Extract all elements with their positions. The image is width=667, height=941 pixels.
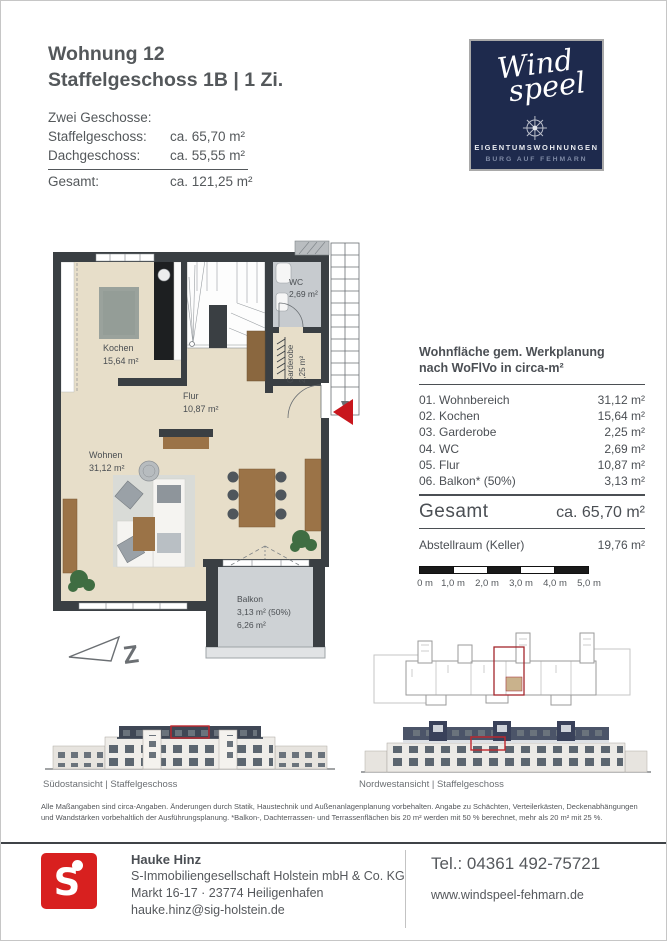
- table-row: 05. Flur10,87 m²: [419, 457, 645, 473]
- table-divider: [419, 528, 645, 529]
- spec-row: Staffelgeschoss: ca. 65,70 m²: [48, 127, 263, 146]
- elevation-northwest-drawing: [359, 717, 653, 777]
- svg-text:Z: Z: [121, 640, 140, 670]
- scale-segment: [521, 567, 555, 573]
- storage-room-row: Abstellraum (Keller)19,76 m²: [419, 538, 645, 552]
- contact-address: Markt 16-17 · 23774 Heiligenhafen: [131, 885, 405, 902]
- windspeel-logo: Windspeel EIGENTUMSWOHNUNGEN BURG AUF FE…: [469, 39, 604, 171]
- room-area-wc: 2,69 m²: [289, 289, 318, 299]
- room-area-balkon-1: 3,13 m² (50%): [237, 607, 291, 617]
- room-area-flur: 10,87 m²: [183, 404, 219, 414]
- room-label-garderobe: Garderobe: [286, 344, 295, 383]
- room-label-flur: Flur: [183, 391, 199, 401]
- room-label-kochen: Kochen: [103, 343, 134, 353]
- room-area-balkon-2: 6,26 m²: [237, 620, 266, 630]
- contact-block: Hauke Hinz S-Immobiliengesellschaft Hols…: [131, 851, 405, 919]
- contact-company: S-Immobiliengesellschaft Holstein mbH & …: [131, 868, 405, 885]
- disclaimer-text: Alle Maßangaben sind circa-Angaben. Ände…: [41, 802, 641, 823]
- contact-name: Hauke Hinz: [131, 851, 405, 868]
- spec-total-row: Gesamt: ca. 121,25 m²: [48, 172, 263, 191]
- scale-segment: [488, 567, 522, 573]
- elevation-northwest-caption: Nordwestansicht | Staffelgeschoss: [359, 779, 504, 790]
- area-table: Wohnfläche gem. Werkplanung nach WoFlVo …: [419, 344, 645, 552]
- brand-name: Windspeel: [469, 41, 604, 111]
- elevation-southeast-caption: Südostansicht | Staffelgeschoss: [43, 779, 177, 790]
- table-divider: [419, 494, 645, 496]
- scale-label: 4,0 m: [543, 578, 567, 589]
- sparkasse-s: S: [41, 861, 93, 904]
- area-summary: Zwei Geschosse: Staffelgeschoss: ca. 65,…: [48, 108, 263, 191]
- north-arrow-icon: Z: [69, 637, 140, 670]
- expose-page: Wohnung 12 Staffelgeschoss 1B | 1 Zi. Zw…: [0, 0, 667, 941]
- total-value: ca. 65,70 m²: [556, 504, 645, 522]
- table-row: 02. Kochen15,64 m²: [419, 408, 645, 424]
- spec-value: ca. 65,70 m²: [170, 127, 245, 146]
- logo-subtitle: EIGENTUMSWOHNUNGEN: [471, 143, 602, 152]
- elevation-southeast-drawing: [43, 717, 337, 777]
- page-title: Wohnung 12 Staffelgeschoss 1B | 1 Zi.: [48, 41, 283, 93]
- scale-label: 0 m: [417, 578, 433, 589]
- scale-bar: 0 m 1,0 m 2,0 m 3,0 m 4,0 m 5,0 m: [419, 566, 599, 592]
- compass-icon: [521, 115, 547, 141]
- spec-label: Staffelgeschoss:: [48, 127, 170, 146]
- scale-segment: [420, 567, 454, 573]
- spec-row: Dachgeschoss: ca. 55,55 m²: [48, 146, 263, 165]
- apartment-title: Wohnung 12: [48, 41, 283, 67]
- scale-label: 5,0 m: [577, 578, 601, 589]
- table-row: 01. Wohnbereich31,12 m²: [419, 392, 645, 408]
- footer-vertical-divider: [405, 850, 406, 928]
- scale-segment: [555, 567, 588, 573]
- spec-total-value: ca. 121,25 m²: [170, 172, 253, 191]
- sparkasse-logo-icon: S: [41, 853, 97, 909]
- specs-intro: Zwei Geschosse:: [48, 108, 263, 127]
- scale-segment: [454, 567, 488, 573]
- wardrobe-cabinet: [247, 331, 265, 381]
- spec-value: ca. 55,55 m²: [170, 146, 245, 165]
- kitchen-counter: [61, 262, 74, 392]
- apartment-subtitle: Staffelgeschoss 1B | 1 Zi.: [48, 67, 283, 93]
- footer-divider: [1, 842, 667, 844]
- scale-label: 1,0 m: [441, 578, 465, 589]
- room-area-garderobe: 2,25 m²: [298, 356, 307, 383]
- spec-total-label: Gesamt:: [48, 172, 170, 191]
- table-row: 06. Balkon* (50%)3,13 m²: [419, 473, 645, 489]
- area-table-title: Wohnfläche gem. Werkplanung nach WoFlVo …: [419, 344, 645, 376]
- key-plan: [366, 619, 661, 709]
- exterior-stair: [331, 243, 359, 415]
- scale-label: 3,0 m: [509, 578, 533, 589]
- table-divider: [419, 384, 645, 385]
- room-area-kochen: 15,64 m²: [103, 356, 139, 366]
- contact-phone: Tel.: 04361 492-75721: [431, 854, 600, 874]
- scale-label: 2,0 m: [475, 578, 499, 589]
- table-row: 04. WC2,69 m²: [419, 441, 645, 457]
- table-total-row: Gesamt ca. 65,70 m²: [419, 501, 645, 523]
- room-label-wohnen: Wohnen: [89, 450, 122, 460]
- contact-website: www.windspeel-fehmarn.de: [431, 888, 584, 902]
- room-area-wohnen: 31,12 m²: [89, 463, 125, 473]
- contact-email: hauke.hinz@sig-holstein.de: [131, 902, 405, 919]
- specs-divider: [48, 169, 248, 170]
- total-label: Gesamt: [419, 501, 489, 523]
- room-label-balkon: Balkon: [237, 594, 263, 604]
- floor-plan: Kochen 15,64 m² Flur 10,87 m² Wohnen 31,…: [41, 233, 376, 673]
- logo-location: BURG AUF FEHMARN: [471, 156, 602, 163]
- shaft-hatch: [295, 241, 329, 255]
- balcony-railing: [206, 647, 325, 658]
- table-row: 03. Garderobe2,25 m²: [419, 424, 645, 440]
- room-label-wc: WC: [289, 277, 303, 287]
- spec-label: Dachgeschoss:: [48, 146, 170, 165]
